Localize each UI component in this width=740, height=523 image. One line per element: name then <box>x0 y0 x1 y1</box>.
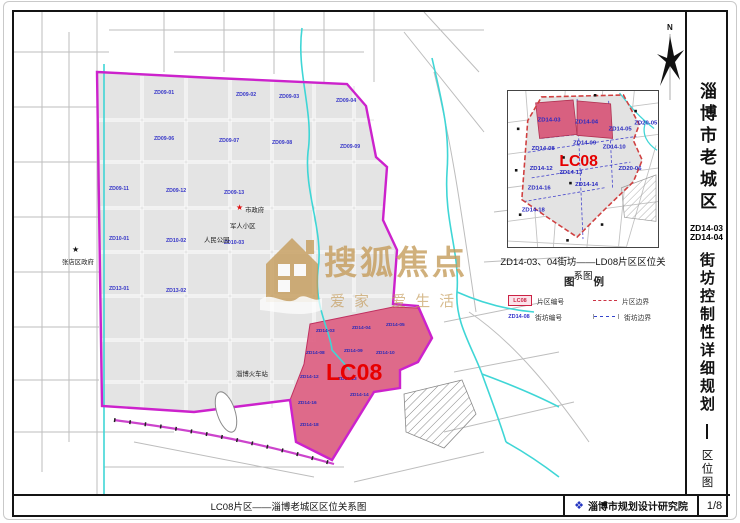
block-label: ZD14-12 <box>530 166 554 172</box>
block-label: ZD09-02 <box>236 92 256 98</box>
watermark-brand: 搜狐焦点 <box>324 244 468 281</box>
legend-label: 片区边界 <box>622 296 649 306</box>
legend: 图 例 LC08 片区编号 ZD14-08 街坊编号 片区边界 街坊边界 <box>502 274 674 322</box>
sheet-code: ZD14-03 ZD14-04 <box>690 224 723 242</box>
block-label: ZD14-05 <box>609 127 633 133</box>
institute-cell: ❖ 淄博市规划设计研究院 <box>563 496 697 515</box>
block-label: ZD09-12 <box>166 188 186 194</box>
block-label: ZD09-06 <box>154 136 174 142</box>
place-label: 张店区政府 <box>62 257 95 266</box>
watermark: 搜狐焦点 爱家 爱生活 <box>260 238 468 314</box>
block-label: ZD14-04 <box>352 325 371 331</box>
lc08-area-label: LC08 <box>326 359 382 385</box>
block-label: ZD13-02 <box>166 288 186 294</box>
block-label: ZD09-01 <box>154 90 174 96</box>
block-label: ZD14-14 <box>575 182 599 188</box>
block-label: ZD14-10 <box>603 144 627 150</box>
legend-item-block-boundary: 街坊边界 <box>593 311 668 322</box>
north-label: N <box>667 23 673 32</box>
block-label: ZD09-08 <box>272 140 292 146</box>
legend-item-district-code: LC08 片区编号 <box>508 295 583 306</box>
planning-sheet: ZD09-01 ZD09-02 ZD09-03 ZD09-04 ZD09-06 … <box>0 0 740 523</box>
legend-label: 片区编号 <box>537 296 564 306</box>
inset-map: ZD14-03 ZD14-04 ZD14-05 ZD20-05 ZD14-09 … <box>507 90 659 248</box>
block-label: ZD14-18 <box>300 422 319 428</box>
block-label: ZD14-16 <box>298 400 317 406</box>
block-label: ZD14-09 <box>344 348 363 354</box>
block-label: ZD14-08 <box>532 146 556 152</box>
sheet-title-sub: 街坊控制性详细规划 <box>696 252 717 414</box>
watermark-slogan: 爱家 爱生活 <box>330 293 463 310</box>
sheet-caption: LC08片区——淄博老城区区位关系图 <box>14 496 563 515</box>
block-label: ZD14-10 <box>376 350 395 356</box>
block-label: ZD09-09 <box>340 144 360 150</box>
institute-name: 淄博市规划设计研究院 <box>588 498 688 513</box>
place-label: 军人小区 <box>230 221 256 230</box>
place-label: 市政府 <box>245 205 265 214</box>
block-label: ZD09-07 <box>219 138 239 144</box>
block-label: ZD20-06 <box>619 166 643 172</box>
title-block: 淄博市老城区 ZD14-03 ZD14-04 街坊控制性详细规划 区位图 <box>685 12 726 496</box>
hatched-area <box>404 380 476 448</box>
star-icon: ★ <box>72 245 79 254</box>
block-label: ZD14-14 <box>350 392 369 398</box>
block-label: ZD14-09 <box>573 140 597 146</box>
sheet-title-main: 淄博市老城区 <box>694 82 719 214</box>
district-code-symbol: LC08 <box>508 295 532 306</box>
sheet-code-line2: ZD14-04 <box>690 233 723 242</box>
block-label: ZD20-05 <box>634 121 658 127</box>
institute-logo-icon: ❖ <box>574 499 584 512</box>
legend-title: 图 例 <box>502 274 674 289</box>
block-label: ZD09-13 <box>224 190 244 196</box>
legend-item-block-code: ZD14-08 街坊编号 <box>508 311 583 322</box>
bottom-title-bar: LC08片区——淄博老城区区位关系图 ❖ 淄博市规划设计研究院 1/8 <box>14 494 730 515</box>
compass-star <box>657 36 684 86</box>
block-label: ZD09-04 <box>336 98 356 104</box>
block-label: ZD13-01 <box>109 286 129 292</box>
block-label: ZD14-16 <box>528 186 552 192</box>
inset-lc08-label: LC08 <box>559 153 598 170</box>
block-label: ZD09-11 <box>109 186 129 192</box>
place-label: 人民公园 <box>204 236 230 244</box>
block-label: ZD14-18 <box>522 207 546 213</box>
block-label: ZD10-02 <box>166 238 186 244</box>
block-label: ZD14-03 <box>316 328 335 334</box>
block-label: ZD14-08 <box>306 350 325 356</box>
star-icon: ★ <box>236 203 243 212</box>
title-dash <box>706 424 708 439</box>
drawing-frame: ZD09-01 ZD09-02 ZD09-03 ZD09-04 ZD09-06 … <box>12 10 728 517</box>
place-label: 淄博火车站 <box>236 369 269 378</box>
block-code-symbol: ZD14-08 <box>508 314 530 320</box>
block-boundary-symbol <box>593 314 619 319</box>
block-label: ZD14-05 <box>386 322 405 328</box>
district-boundary-symbol <box>593 300 617 301</box>
legend-label: 街坊边界 <box>624 312 651 322</box>
block-label: ZD14-12 <box>300 374 319 380</box>
block-label: ZD14-03 <box>538 118 562 124</box>
legend-label: 街坊编号 <box>535 312 562 322</box>
legend-item-district-boundary: 片区边界 <box>593 295 668 306</box>
block-label: ZD10-01 <box>109 236 129 242</box>
block-label: ZD09-03 <box>279 94 299 100</box>
page-number: 1/8 <box>697 496 730 515</box>
block-label: ZD14-13 <box>559 170 583 176</box>
block-label: ZD14-04 <box>575 120 599 126</box>
sheet-type-label: 区位图 <box>699 449 715 490</box>
